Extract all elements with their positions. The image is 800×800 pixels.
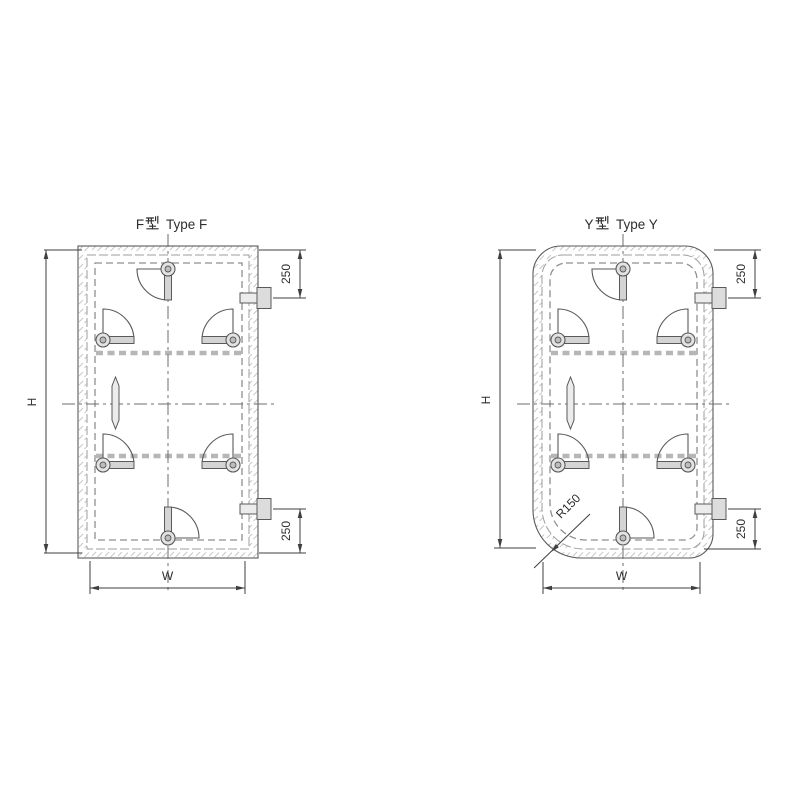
dog-handle-bottom-center — [616, 507, 654, 545]
hinge-block — [712, 288, 726, 309]
dimension-lines — [494, 250, 536, 548]
dog-handle-upper-right — [657, 309, 695, 347]
cjk-xing-type-glyph — [596, 216, 608, 229]
dog-bolt-center — [620, 535, 626, 541]
technical-drawing-page: F Type F — [0, 0, 800, 800]
dog-bolt-center — [100, 337, 106, 343]
dog-bolt-center — [100, 462, 106, 468]
dimension-arrow-down — [498, 539, 503, 548]
radius-label: R150 — [553, 491, 583, 521]
dimension-height-f: H — [25, 250, 82, 553]
hinge-block — [257, 499, 271, 520]
dog-bolt-center — [230, 462, 236, 468]
dog-handle-upper-left — [551, 309, 589, 347]
operating-lever — [112, 377, 119, 429]
dog-bolt-center — [165, 266, 171, 272]
dog-handle-lower-right — [657, 434, 695, 472]
dog-handle-top-center — [592, 262, 630, 300]
dimension-arrow-right — [691, 586, 700, 591]
dog-handle-lower-right — [202, 434, 240, 472]
dimension-arrow-down — [753, 540, 758, 549]
dimension-arrow-up — [44, 250, 49, 259]
dog-bolt-center — [685, 462, 691, 468]
cjk-xing-type-glyph — [146, 216, 158, 229]
dimension-width-y: W — [543, 562, 700, 594]
type-f-title: F Type F — [136, 216, 207, 232]
type-y-diagram: Y Type Y — [479, 216, 761, 594]
dog-handle-upper-right — [202, 309, 240, 347]
hinge-block — [257, 288, 271, 309]
dog-bolt-center — [685, 337, 691, 343]
dimension-arrow-down — [44, 544, 49, 553]
width-label: W — [162, 569, 174, 583]
hinge-block — [712, 499, 726, 520]
dimension-arrow-down — [298, 544, 303, 553]
offset-label: 250 — [734, 264, 748, 284]
dog-handle-upper-left — [96, 309, 134, 347]
dimension-arrow-right — [236, 586, 245, 591]
dimension-height-y: H — [479, 250, 536, 548]
width-label: W — [616, 569, 628, 583]
dimension-arrow-up — [298, 250, 303, 259]
type-y-title-en: Type Y — [616, 217, 658, 232]
height-label: H — [25, 398, 39, 407]
type-f-diagram: F Type F — [25, 216, 306, 594]
type-y-title-cn-prefix: Y — [584, 217, 593, 232]
dog-handle-top-center — [137, 262, 175, 300]
type-y-title: Y Type Y — [584, 216, 657, 232]
dimension-arrow-up — [498, 250, 503, 259]
offset-label: 250 — [279, 264, 293, 284]
dog-bolt-center — [620, 266, 626, 272]
operating-lever — [567, 377, 574, 429]
type-f-title-cn-prefix: F — [136, 217, 144, 232]
dimension-arrow-up — [753, 509, 758, 518]
dog-bolt-center — [555, 462, 561, 468]
dog-handle-bottom-center — [161, 507, 199, 545]
dimension-arrow-down — [753, 289, 758, 298]
dog-bolt-center — [555, 337, 561, 343]
dimension-arrow-up — [753, 250, 758, 259]
dog-bolt-center — [165, 535, 171, 541]
height-label: H — [479, 396, 493, 405]
dimension-arrow-left — [90, 586, 99, 591]
offset-label: 250 — [279, 521, 293, 541]
type-f-title-en: Type F — [166, 217, 207, 232]
dimension-arrow-down — [298, 289, 303, 298]
dog-handle-lower-left — [551, 434, 589, 472]
dog-bolt-center — [230, 337, 236, 343]
dimension-arrow-left — [543, 586, 552, 591]
dimension-arrow-up — [298, 509, 303, 518]
dog-handle-lower-left — [96, 434, 134, 472]
offset-label: 250 — [734, 519, 748, 539]
dimension-lines — [44, 250, 82, 553]
doors-drawing: F Type F — [0, 0, 800, 800]
